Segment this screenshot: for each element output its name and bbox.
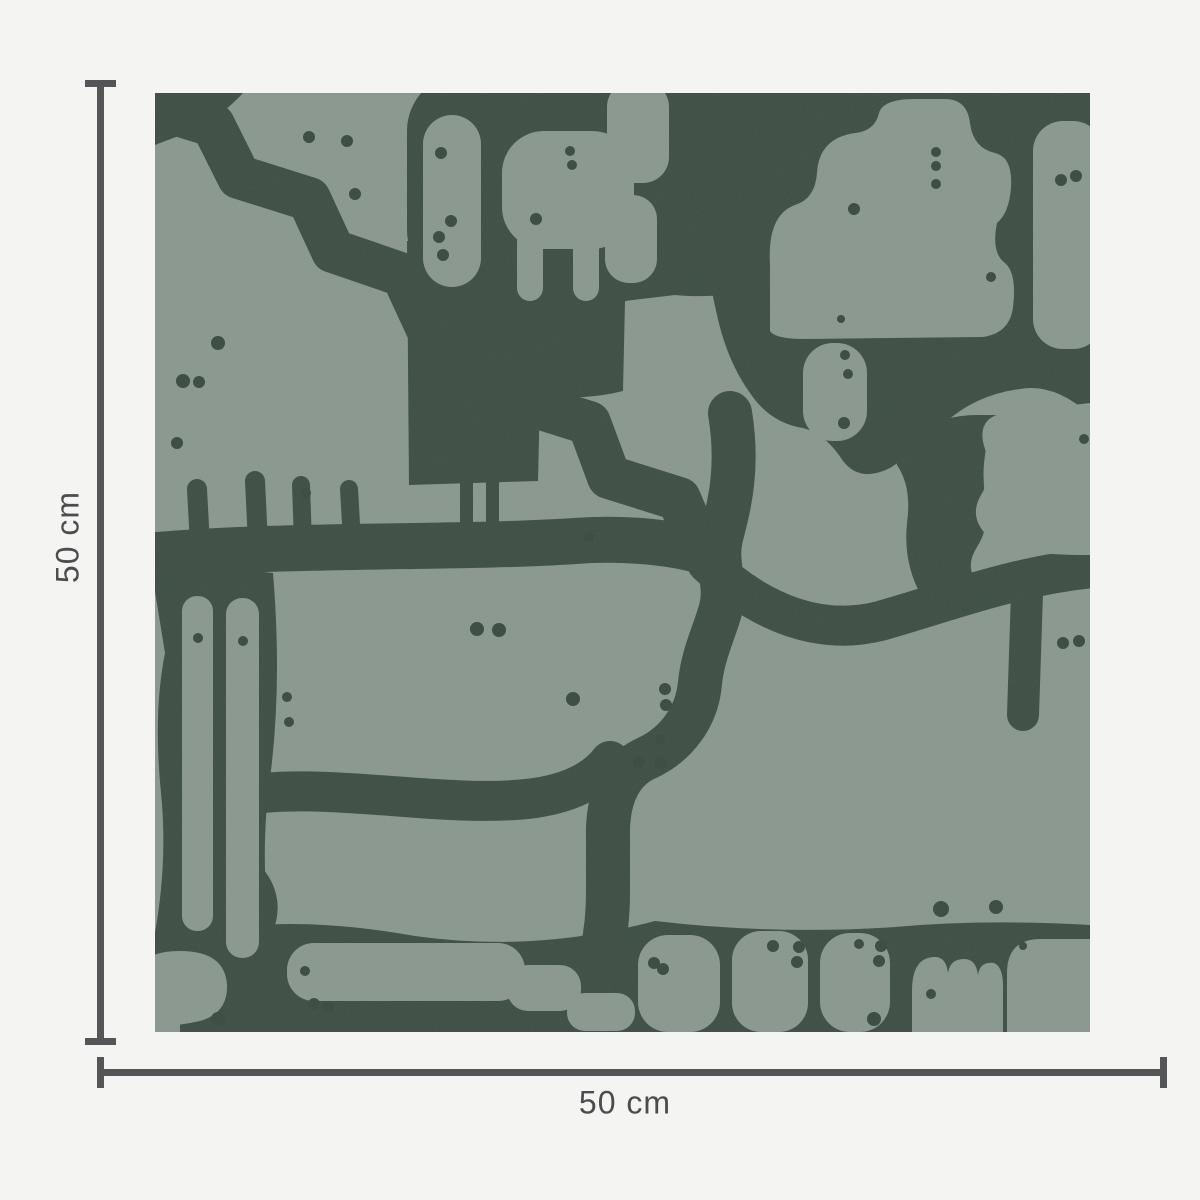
width-dimension-label: 50 cm — [579, 1085, 671, 1122]
width-dimension-cap-left — [97, 1057, 104, 1088]
wallpaper-swatch — [155, 93, 1090, 1032]
product-dimension-image: 50 cm 50 cm — [0, 0, 1200, 1200]
height-dimension-label: 50 cm — [50, 491, 87, 583]
width-dimension-line — [100, 1069, 1164, 1076]
height-dimension-cap-bottom — [85, 1038, 116, 1045]
height-dimension-line — [97, 83, 104, 1042]
height-dimension-cap-top — [85, 80, 116, 87]
width-dimension-cap-right — [1160, 1057, 1167, 1088]
